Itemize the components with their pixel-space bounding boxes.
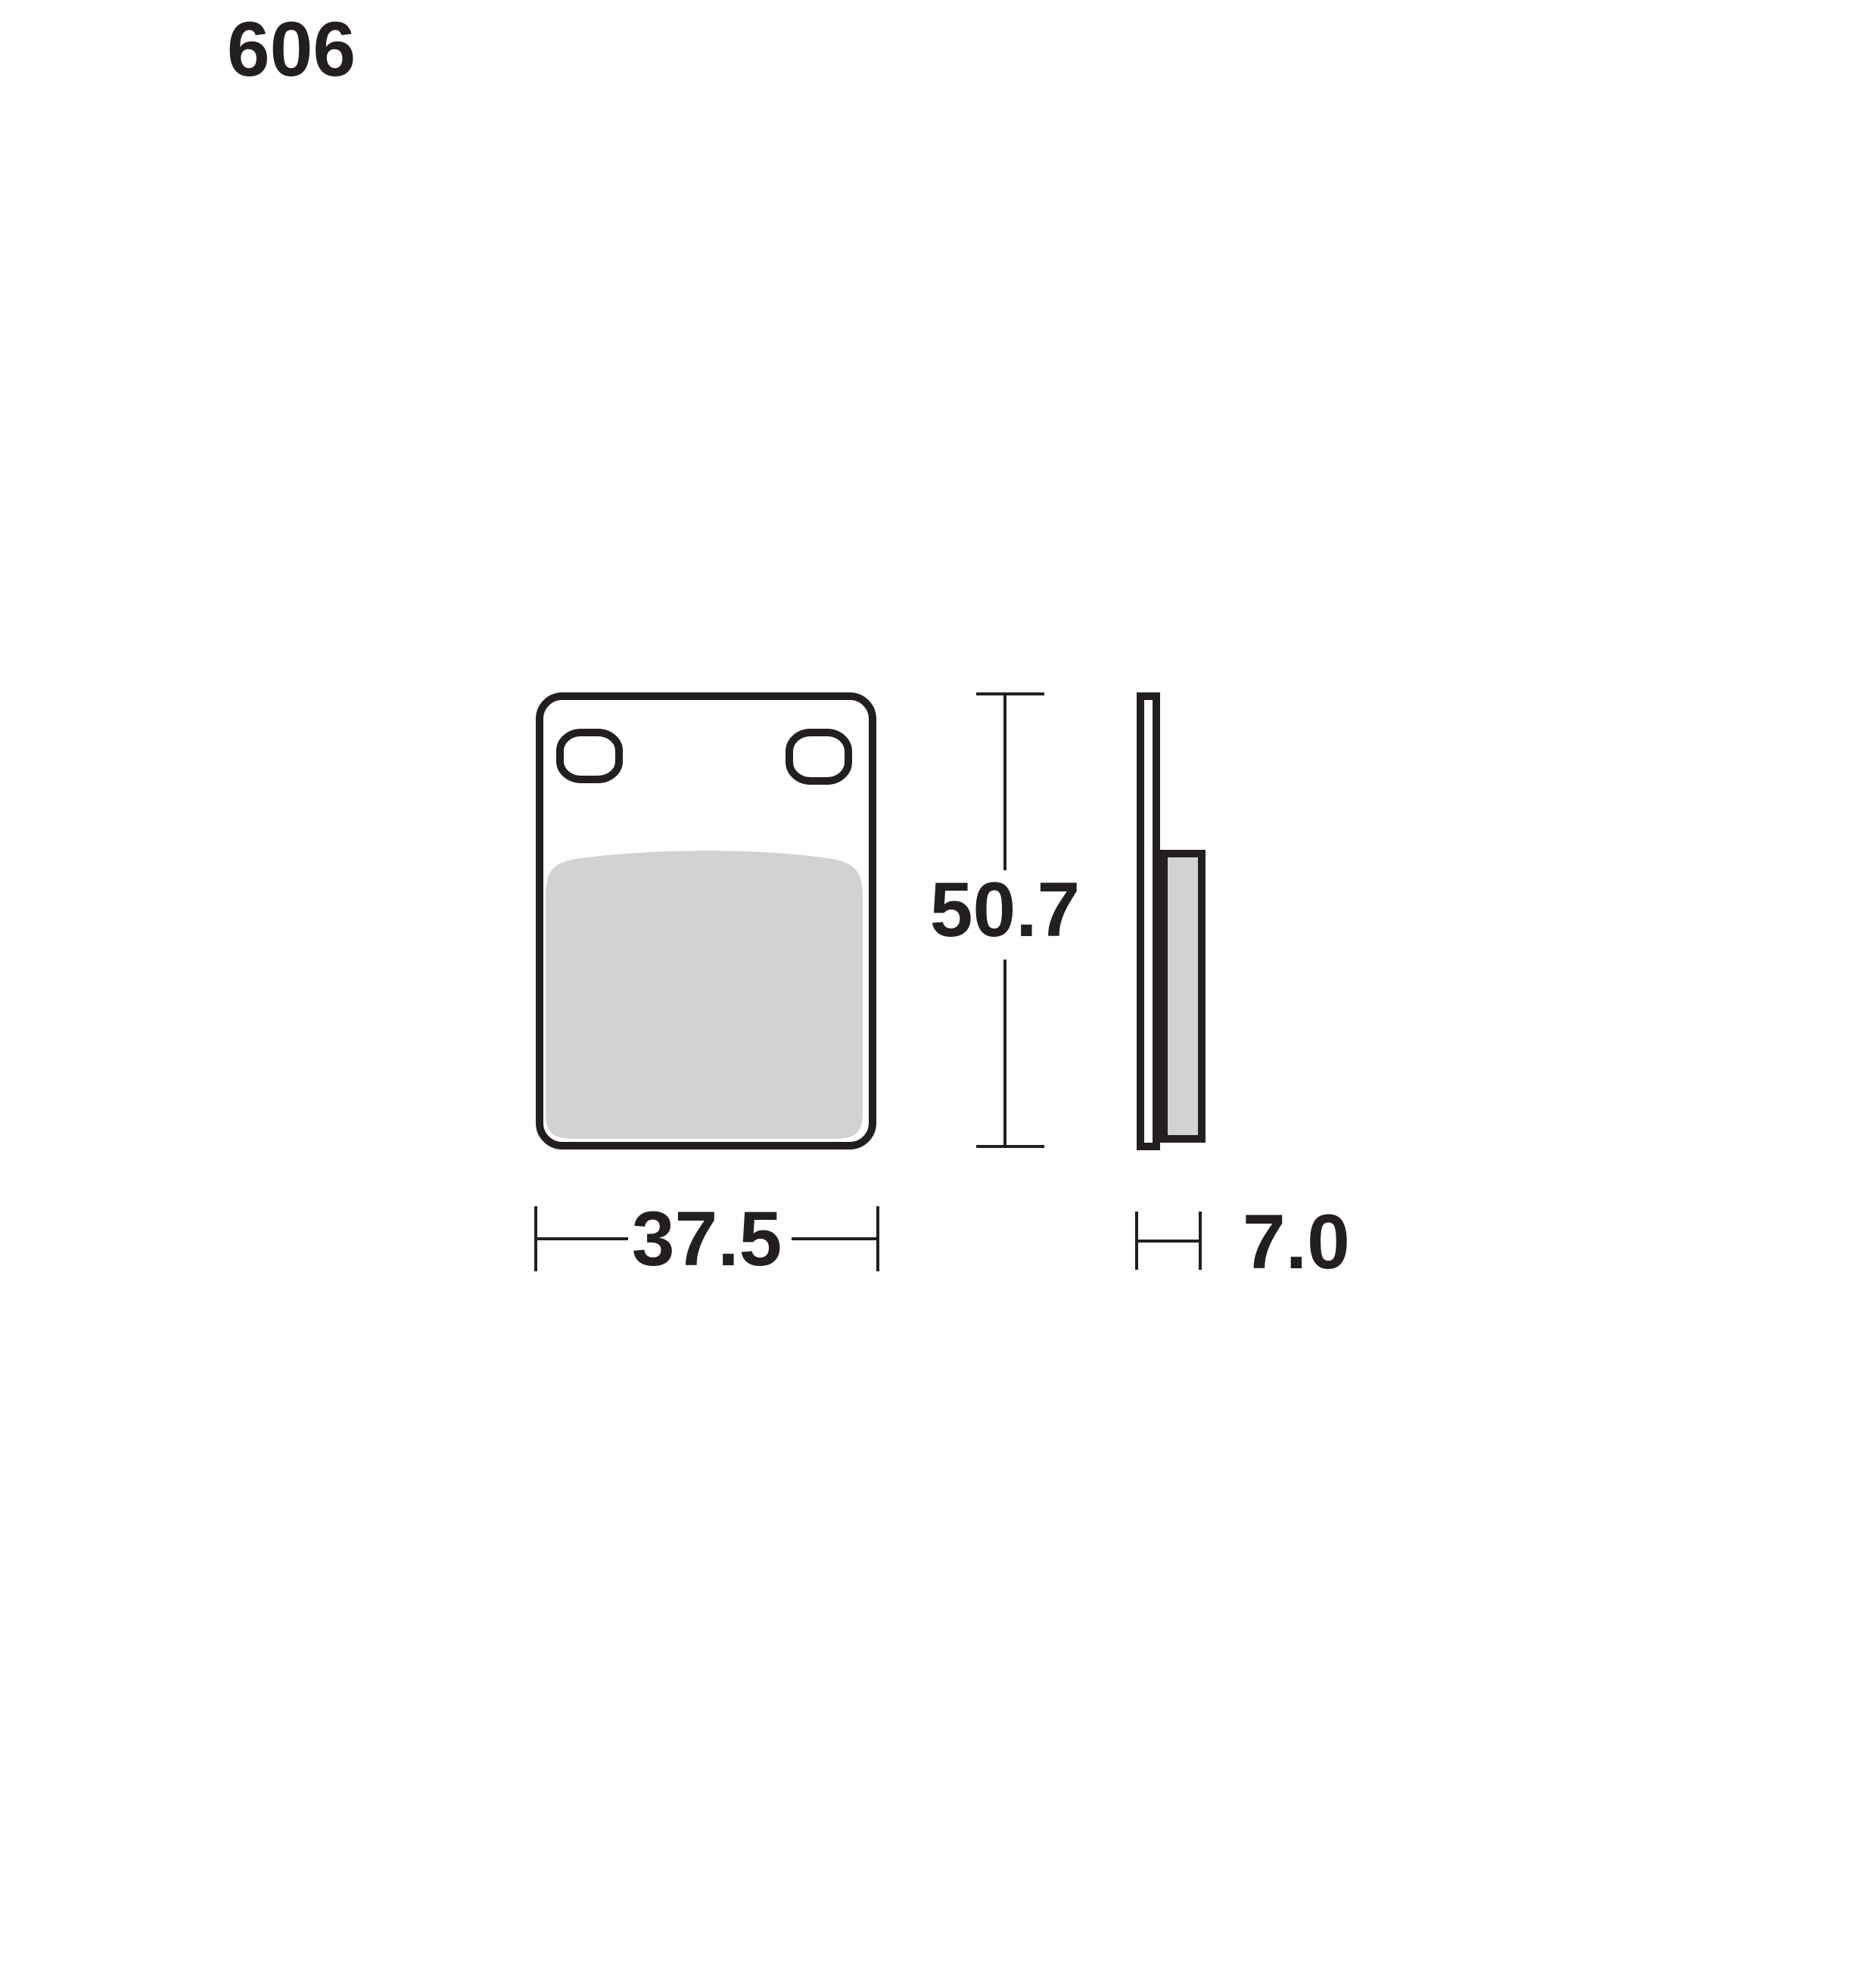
height-dim-label: 50.7 [930,866,1081,953]
height-dimension: 50.7 [930,694,1081,1146]
technical-drawing-page: 606 50.7 [0,0,1876,1966]
brake-pad-side-view [1140,696,1202,1146]
friction-material-front [546,851,863,1139]
backplate-side [1140,696,1156,1146]
brake-pad-front-view [540,696,873,1146]
mounting-hole-right [789,733,848,781]
width-dimension: 37.5 [536,1196,878,1282]
width-dim-label: 37.5 [632,1196,782,1282]
friction-material-side [1164,854,1202,1139]
thickness-dimension: 7.0 [1137,1199,1350,1285]
thickness-dim-label: 7.0 [1243,1199,1350,1285]
part-number-label: 606 [227,6,356,92]
mounting-hole-left [560,733,619,779]
brake-pad-dimension-diagram: 606 50.7 [0,0,1876,1966]
